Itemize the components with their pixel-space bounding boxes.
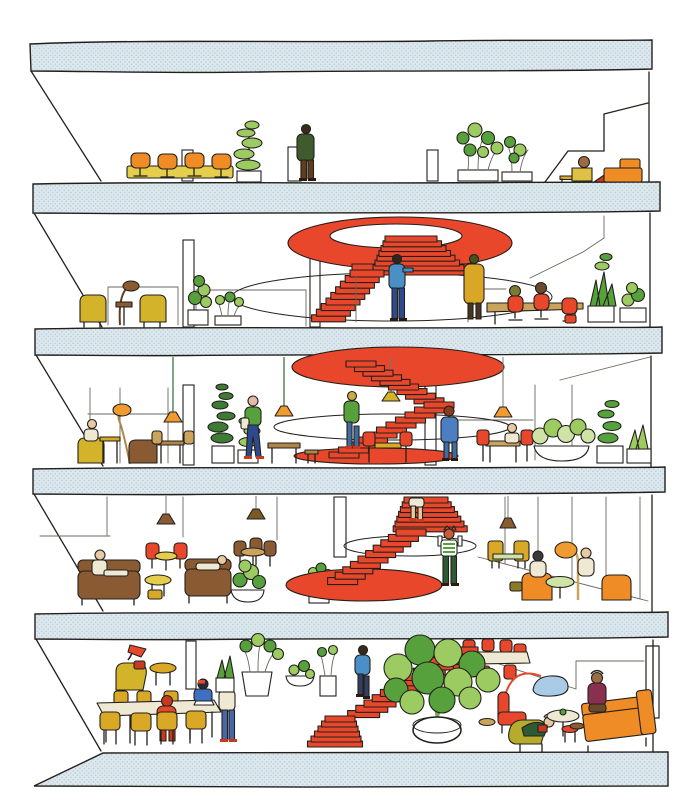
person-hooded-olive	[510, 286, 521, 297]
yellow-armchair	[80, 295, 106, 322]
stair-step	[346, 361, 376, 367]
roof-slab	[30, 40, 652, 72]
big-pot	[242, 672, 272, 696]
side-table	[150, 663, 176, 673]
disc-table	[479, 719, 495, 726]
red-floor-band	[294, 448, 458, 464]
stair-step	[385, 236, 437, 242]
lamp-shade	[123, 281, 139, 291]
stair-step	[350, 270, 384, 277]
small-disc	[570, 723, 584, 729]
slab-5-4	[33, 182, 660, 214]
side-table	[116, 302, 132, 307]
stair-step	[325, 716, 355, 722]
column	[183, 385, 194, 465]
slab-3-2	[33, 467, 665, 495]
stool	[510, 582, 522, 591]
coffee-table	[145, 575, 171, 585]
person-sitting-sofa	[95, 550, 105, 560]
yellow-armchair	[140, 295, 166, 322]
round-tree-pot	[413, 717, 461, 743]
orange-armchair	[602, 575, 631, 600]
lamp-shade	[113, 404, 131, 416]
lamp-shade	[555, 542, 577, 558]
column	[186, 641, 196, 689]
yellow-armchair	[78, 438, 104, 463]
column	[427, 150, 438, 181]
building-section-illustration: Hand-drawn architectural cross-section o…	[0, 0, 695, 800]
ground-slab	[34, 752, 668, 787]
column	[334, 497, 346, 557]
stool	[148, 590, 162, 599]
person-seated-table	[508, 424, 517, 433]
red-stool	[565, 315, 576, 323]
slab-2-1	[35, 612, 668, 640]
person-seated	[581, 548, 591, 558]
person-hooded-brown	[536, 283, 547, 294]
person-seated	[88, 420, 97, 429]
red-book	[538, 725, 547, 732]
illustration-page: Hand-drawn architectural cross-section o…	[0, 0, 695, 800]
background	[0, 0, 695, 800]
stair-step	[396, 529, 426, 536]
round-table	[546, 577, 574, 588]
person-seated	[533, 551, 543, 561]
